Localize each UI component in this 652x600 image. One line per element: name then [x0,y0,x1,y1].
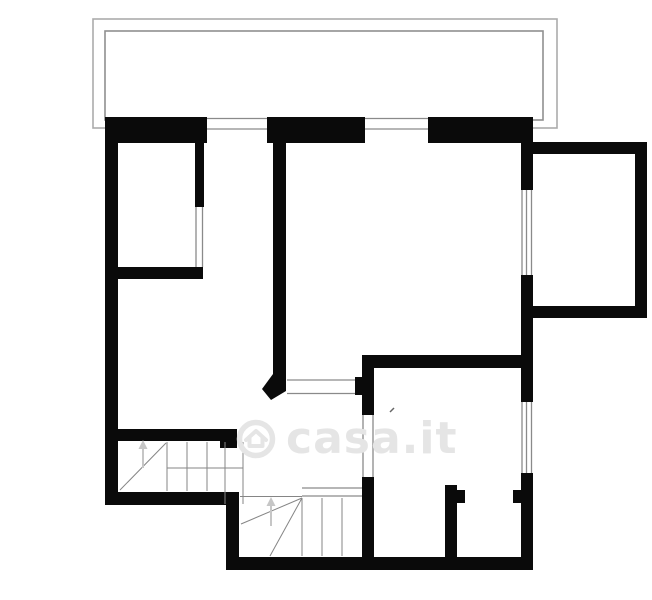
top-wall-left-segment [105,117,207,143]
side-balcony-bottom-wall [533,306,647,318]
central-partition-wall [273,143,286,383]
bedroom-right-wall [195,143,204,207]
terrace-window-left [207,117,267,143]
lower-left-bottom-wall [105,492,237,505]
top-wall-middle-segment [267,117,365,143]
lower-room-left-wall-upper [362,355,374,415]
hall-glass-opening [287,379,355,395]
terrace-window-right [365,117,428,143]
floor-plan-drawing [0,0,652,600]
closet-door-stub-left [457,490,465,503]
right-exterior-wall-lower [521,473,533,570]
side-balcony-right-wall [635,142,647,318]
right-exterior-wall-upper [521,117,533,190]
plan-background [0,0,652,600]
bedroom-bottom-wall [105,267,203,279]
lower-room-top-wall [362,355,533,368]
left-exterior-wall [105,117,118,505]
bottom-exterior-wall [226,557,533,570]
closet-door-stub-right [513,490,521,503]
side-balcony-top-wall [533,142,647,154]
lower-room-left-window [362,415,374,477]
right-exterior-wall-middle [521,275,533,402]
lower-room-left-wall-lower [362,477,374,570]
floor-plan-page: casa.it [0,0,652,600]
stair-top-wall [118,429,230,441]
stair-top-wall-end-cap [220,429,237,448]
hall-opening-stub [355,377,362,395]
top-wall-right-segment [428,117,533,143]
